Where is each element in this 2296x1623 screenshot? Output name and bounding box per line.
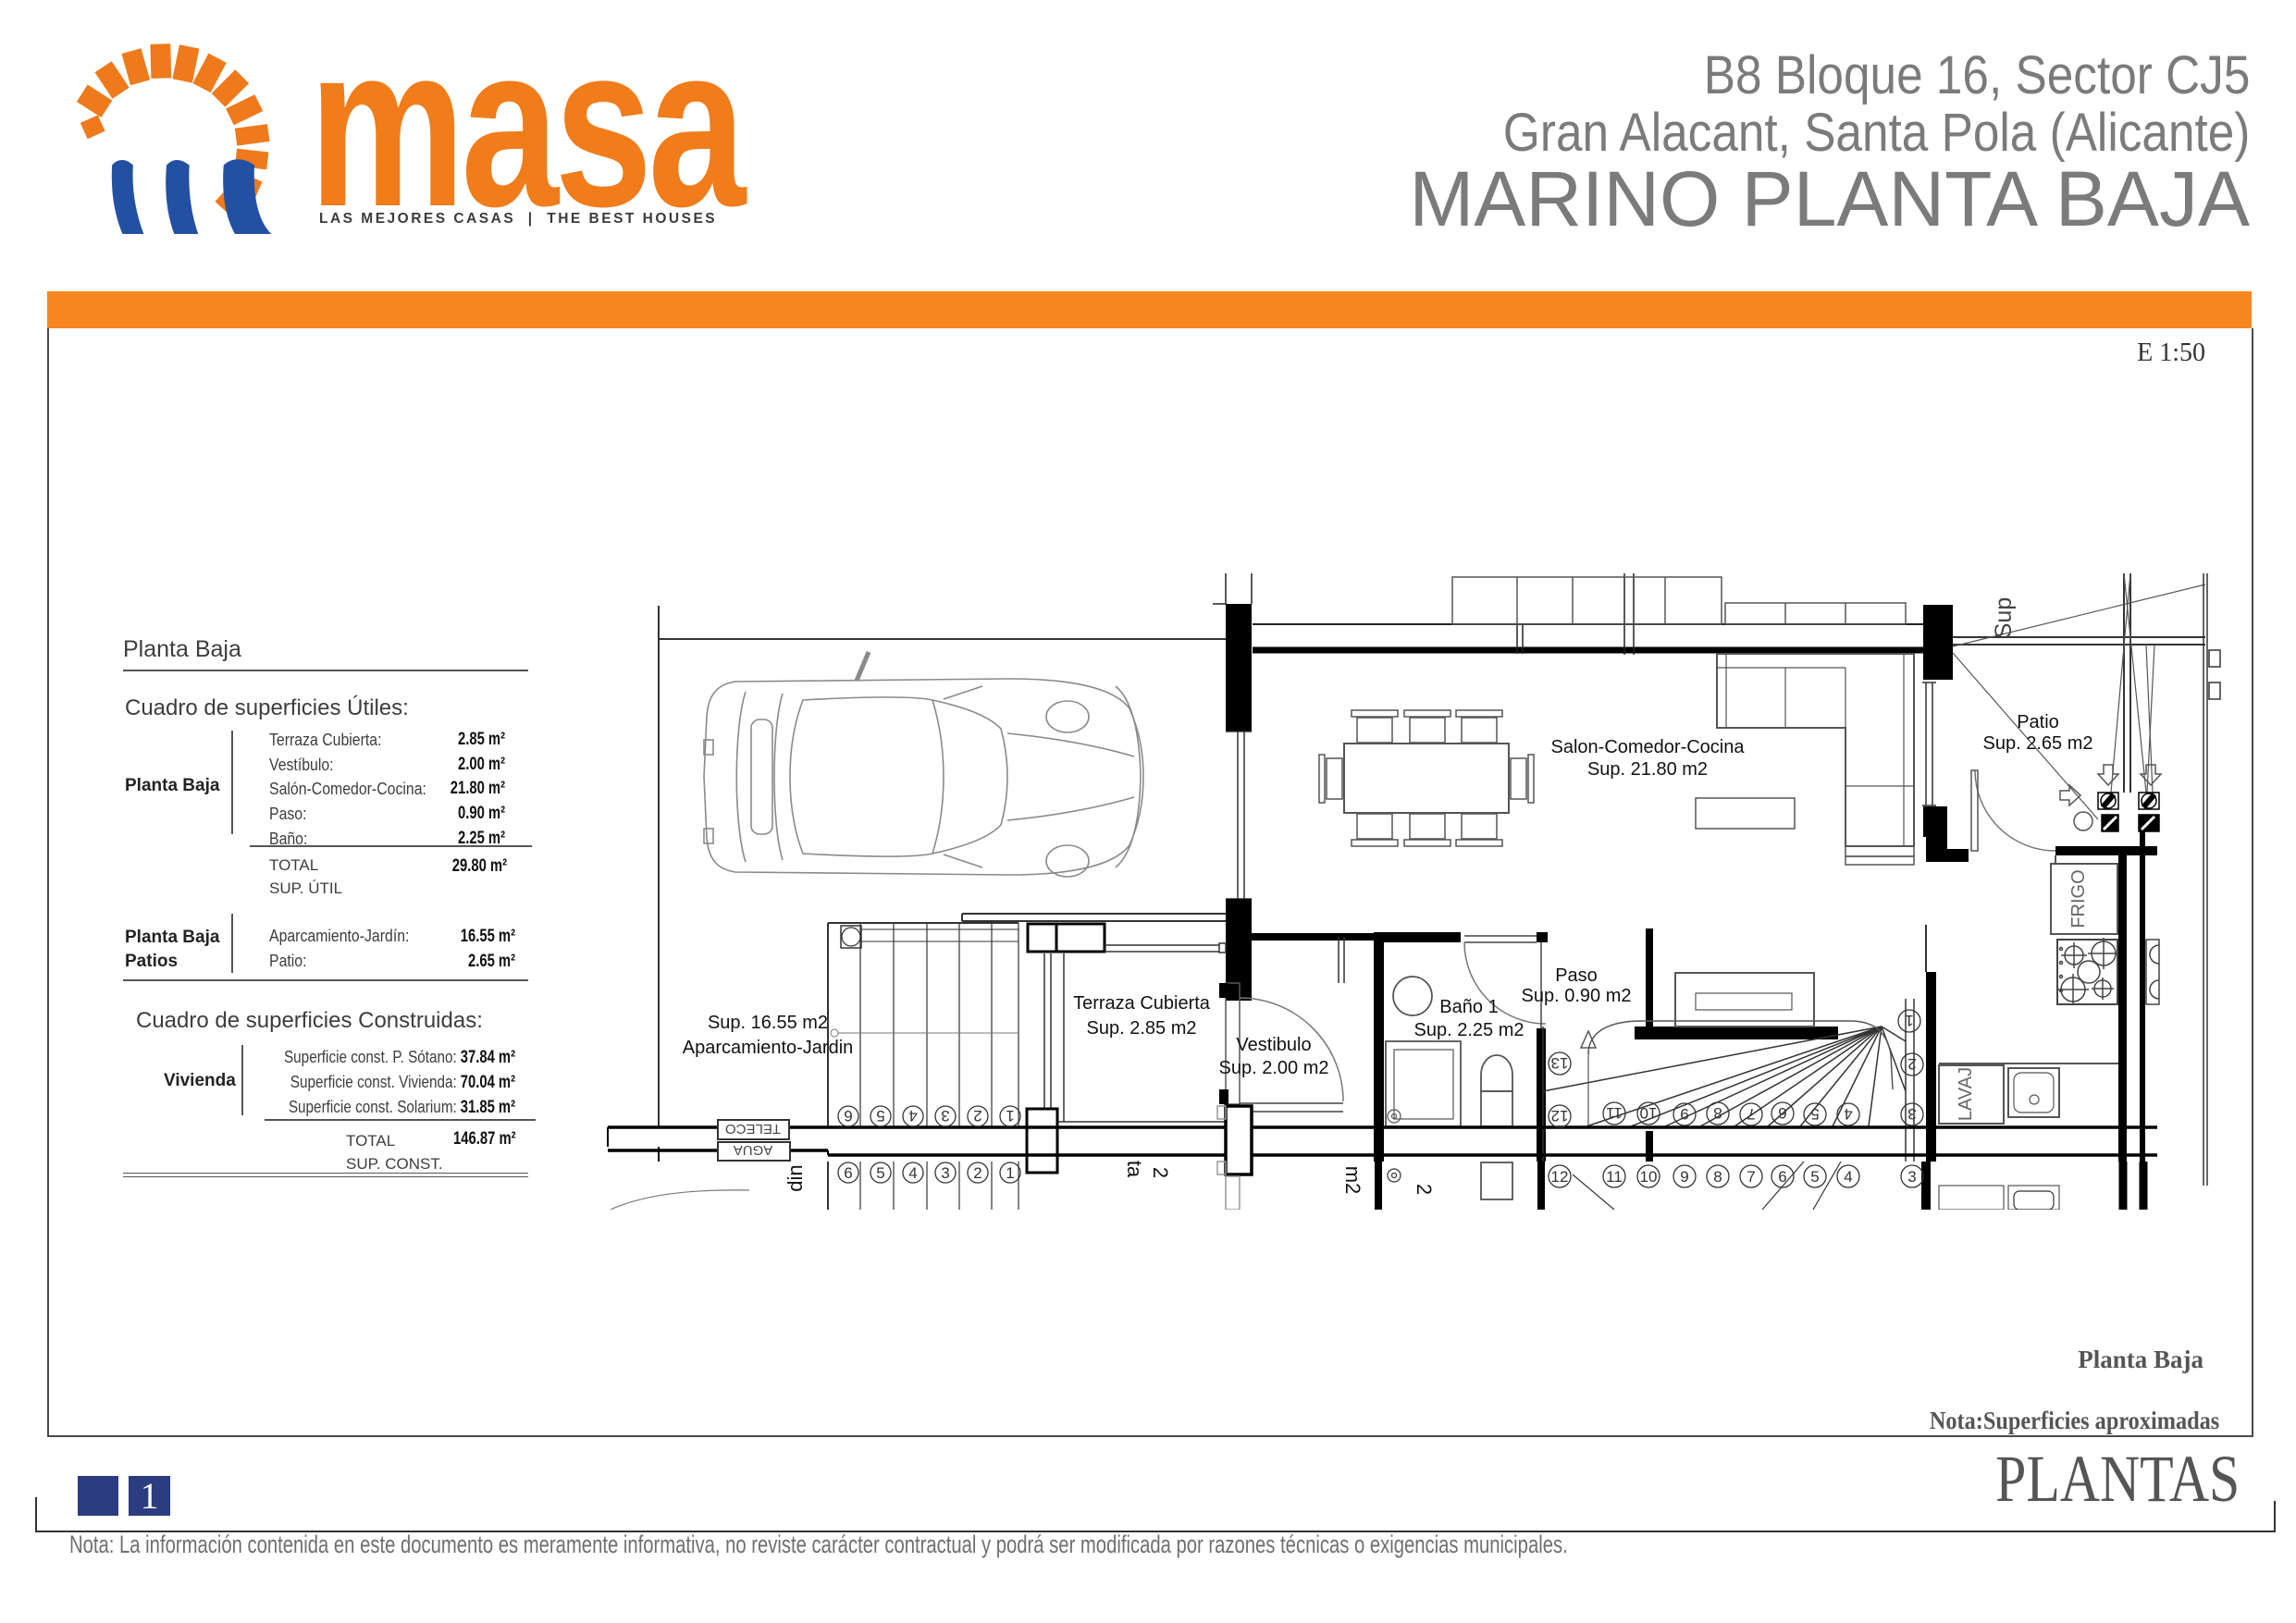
svg-text:1: 1 bbox=[1006, 1107, 1014, 1125]
svg-text:5: 5 bbox=[1810, 1105, 1819, 1123]
svg-text:Sup. 2.25 m2: Sup. 2.25 m2 bbox=[1414, 1020, 1524, 1040]
svg-text:5: 5 bbox=[1810, 1168, 1819, 1186]
svg-text:Sup. 21.80 m2: Sup. 21.80 m2 bbox=[1587, 759, 1708, 780]
svg-text:Patio: Patio bbox=[2017, 712, 2059, 732]
svg-text:1: 1 bbox=[1006, 1164, 1014, 1182]
svg-text:12: 12 bbox=[1551, 1168, 1569, 1186]
svg-text:6: 6 bbox=[1778, 1104, 1786, 1122]
svg-text:6: 6 bbox=[844, 1164, 852, 1182]
svg-text:Baño 1: Baño 1 bbox=[1439, 997, 1498, 1017]
svg-text:Salon-Comedor-Cocina: Salon-Comedor-Cocina bbox=[1551, 737, 1746, 757]
svg-text:3: 3 bbox=[1907, 1168, 1916, 1186]
svg-text:9: 9 bbox=[1680, 1105, 1688, 1123]
svg-text:10: 10 bbox=[1640, 1104, 1658, 1122]
svg-text:5: 5 bbox=[876, 1107, 884, 1125]
svg-text:LAVAJ: LAVAJ bbox=[1956, 1067, 1976, 1121]
svg-text:Sup: Sup bbox=[1991, 597, 2017, 638]
svg-text:m2: m2 bbox=[1341, 1166, 1364, 1195]
svg-text:Sup. 2.85 m2: Sup. 2.85 m2 bbox=[1087, 1018, 1197, 1039]
svg-text:Sup. 16.55 m2: Sup. 16.55 m2 bbox=[708, 1013, 828, 1033]
svg-text:11: 11 bbox=[1606, 1104, 1623, 1122]
svg-text:9: 9 bbox=[1680, 1168, 1688, 1186]
svg-text:din: din bbox=[784, 1164, 807, 1191]
svg-text:AGUA: AGUA bbox=[734, 1142, 773, 1158]
svg-text:5: 5 bbox=[876, 1164, 884, 1182]
svg-text:Vestibulo: Vestibulo bbox=[1236, 1035, 1311, 1055]
svg-text:Sup. 0.90 m2: Sup. 0.90 m2 bbox=[1522, 986, 1632, 1006]
svg-text:2: 2 bbox=[1907, 1055, 1916, 1073]
svg-text:4: 4 bbox=[908, 1164, 917, 1182]
svg-text:2: 2 bbox=[1149, 1167, 1172, 1178]
svg-text:Sup. 2.65 m2: Sup. 2.65 m2 bbox=[1983, 733, 2093, 754]
svg-text:2: 2 bbox=[973, 1164, 981, 1182]
svg-text:4: 4 bbox=[1844, 1168, 1852, 1186]
svg-text:8: 8 bbox=[1713, 1168, 1722, 1186]
svg-text:7: 7 bbox=[1747, 1105, 1755, 1123]
svg-text:2: 2 bbox=[973, 1107, 981, 1125]
svg-text:11: 11 bbox=[1606, 1168, 1623, 1186]
svg-text:Aparcamiento-Jardin: Aparcamiento-Jardin bbox=[683, 1038, 854, 1058]
svg-text:2: 2 bbox=[1413, 1184, 1436, 1195]
svg-text:6: 6 bbox=[1778, 1168, 1786, 1186]
svg-text:10: 10 bbox=[1640, 1168, 1658, 1186]
svg-text:4: 4 bbox=[908, 1107, 917, 1125]
svg-text:7: 7 bbox=[1747, 1168, 1755, 1186]
svg-text:Terraza Cubierta: Terraza Cubierta bbox=[1073, 993, 1211, 1014]
svg-text:3: 3 bbox=[941, 1107, 949, 1125]
svg-text:12: 12 bbox=[1551, 1107, 1569, 1125]
svg-text:3: 3 bbox=[941, 1164, 949, 1182]
svg-text:8: 8 bbox=[1713, 1104, 1722, 1122]
svg-text:13: 13 bbox=[1551, 1054, 1569, 1072]
svg-text:TELECO: TELECO bbox=[725, 1121, 781, 1137]
svg-text:3: 3 bbox=[1907, 1105, 1916, 1123]
svg-text:Paso: Paso bbox=[1555, 965, 1598, 986]
svg-text:1: 1 bbox=[1905, 1012, 1913, 1029]
svg-text:6: 6 bbox=[844, 1107, 852, 1125]
svg-text:FRIGO: FRIGO bbox=[2068, 869, 2089, 928]
svg-text:4: 4 bbox=[1844, 1105, 1852, 1123]
svg-text:ta: ta bbox=[1123, 1161, 1146, 1178]
svg-text:Sup. 2.00 m2: Sup. 2.00 m2 bbox=[1219, 1058, 1329, 1078]
